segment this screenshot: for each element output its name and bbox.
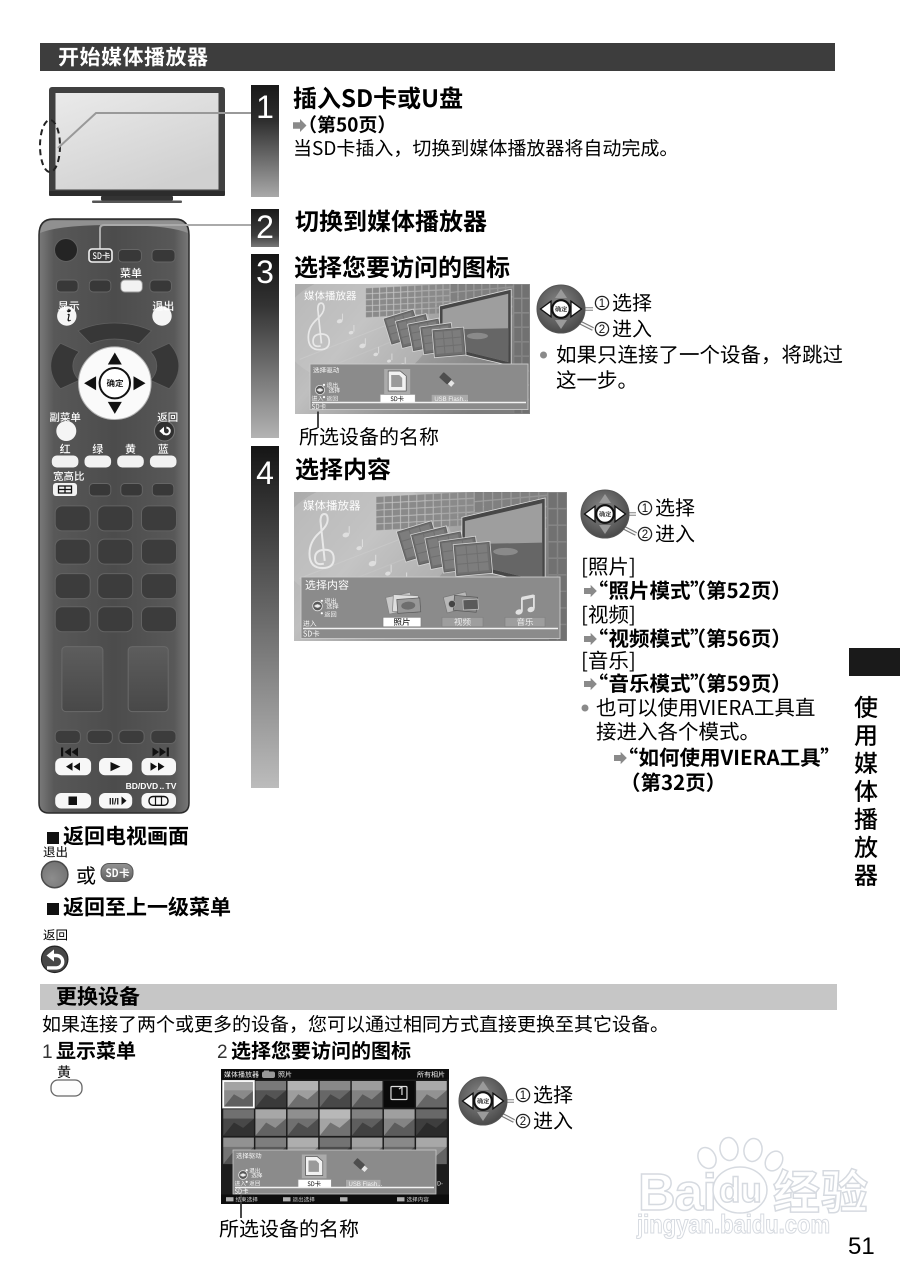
svg-text:2: 2	[520, 1116, 526, 1128]
svg-text:..: ..	[160, 781, 165, 791]
svg-text:jingyan.baidu.com: jingyan.baidu.com	[636, 1209, 830, 1239]
svg-text:1: 1	[599, 298, 605, 310]
svg-text:1: 1	[256, 89, 274, 125]
svg-text:du: du	[719, 1171, 762, 1210]
svg-text:TV: TV	[166, 781, 177, 791]
svg-text:2: 2	[256, 209, 274, 245]
svg-text:1: 1	[520, 1090, 526, 1102]
svg-text:3: 3	[256, 254, 274, 290]
svg-text:4: 4	[256, 455, 274, 491]
svg-text:2: 2	[642, 529, 648, 541]
svg-text:2: 2	[217, 1042, 228, 1063]
svg-text:51: 51	[848, 1233, 875, 1260]
svg-text:II/I: II/I	[109, 797, 119, 807]
svg-text:BD/DVD: BD/DVD	[126, 781, 159, 791]
svg-text:1: 1	[642, 503, 648, 515]
svg-text:1: 1	[42, 1042, 53, 1063]
svg-text:2: 2	[599, 324, 605, 336]
